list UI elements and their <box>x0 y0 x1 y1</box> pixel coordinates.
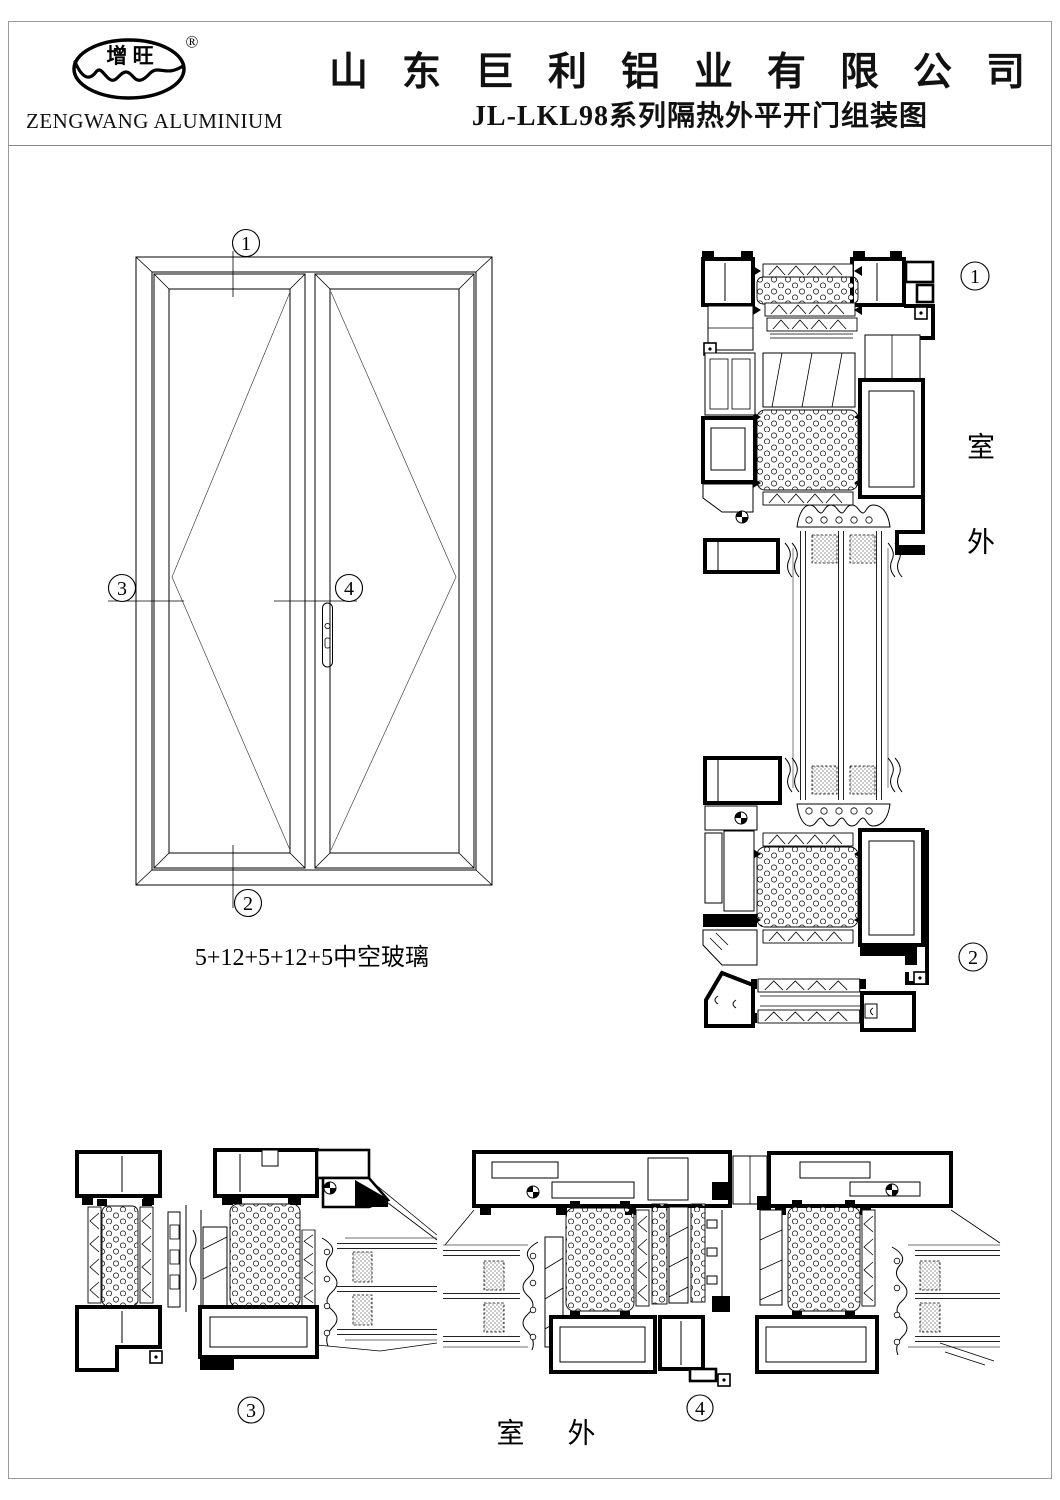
svg-text:1: 1 <box>241 233 251 255</box>
callout-2: 2 <box>233 845 262 917</box>
section-3: 3 <box>77 1150 437 1423</box>
door-handle <box>323 603 333 667</box>
vs-callout-2: 2 <box>959 943 987 971</box>
vs-threshold <box>706 973 914 1030</box>
outdoor-label-bottom-sections: 室 外 <box>496 1418 613 1450</box>
left-leaf-swing-lines <box>172 292 290 850</box>
hs-callout-4: 4 <box>687 1395 713 1421</box>
svg-text:3: 3 <box>117 578 127 600</box>
callout-4: 4 <box>274 575 363 602</box>
outdoor-label-bottom: 外 <box>967 527 995 559</box>
vs-glazing-unit <box>785 505 902 826</box>
svg-text:2: 2 <box>968 947 978 969</box>
drawing-sheet: 增 旺 ® ZENGWANG ALUMINIUM 山东巨利铝业有限公司 JL-L… <box>0 0 1060 1500</box>
vertical-section: 1 室 外 2 <box>702 251 995 1030</box>
section-4: 4 室 外 <box>443 1152 1000 1450</box>
svg-text:3: 3 <box>246 1400 256 1422</box>
vs-callout-1: 1 <box>961 262 989 290</box>
glass-spec-label: 5+12+5+12+5中空玻璃 <box>195 944 429 971</box>
svg-text:4: 4 <box>695 1398 705 1420</box>
hs-callout-3: 3 <box>238 1397 264 1423</box>
svg-text:1: 1 <box>970 266 980 288</box>
svg-text:2: 2 <box>243 893 253 915</box>
callout-1: 1 <box>233 230 260 298</box>
door-elevation: 1 2 3 4 5+12+5+12+5中空玻璃 <box>108 230 492 972</box>
svg-text:4: 4 <box>344 578 354 600</box>
right-leaf-swing-lines <box>331 292 456 850</box>
outdoor-label-top: 室 <box>967 432 995 464</box>
assembly-drawing: 1 2 3 4 5+12+5+12+5中空玻璃 <box>0 0 1060 1500</box>
